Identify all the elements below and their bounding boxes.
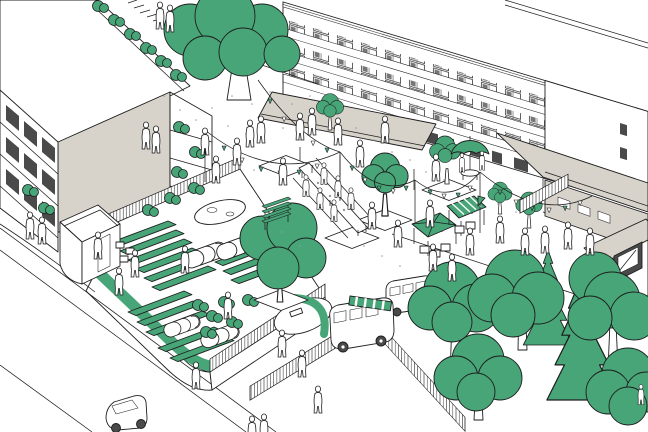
tree-canopy [164, 0, 300, 80]
street-far-edge [0, 365, 92, 432]
rear-building-lines [505, 0, 648, 48]
tree-pit [325, 228, 379, 249]
end-wall-window [620, 123, 627, 136]
end-wall-window [620, 147, 627, 160]
camper-van-food-truck [330, 296, 394, 352]
illustration-canvas: Hand-drawn axonometric illustration of a… [0, 0, 648, 432]
car-on-street [106, 396, 147, 432]
urban-courtyard-illustration: Hand-drawn axonometric illustration of a… [0, 0, 648, 432]
